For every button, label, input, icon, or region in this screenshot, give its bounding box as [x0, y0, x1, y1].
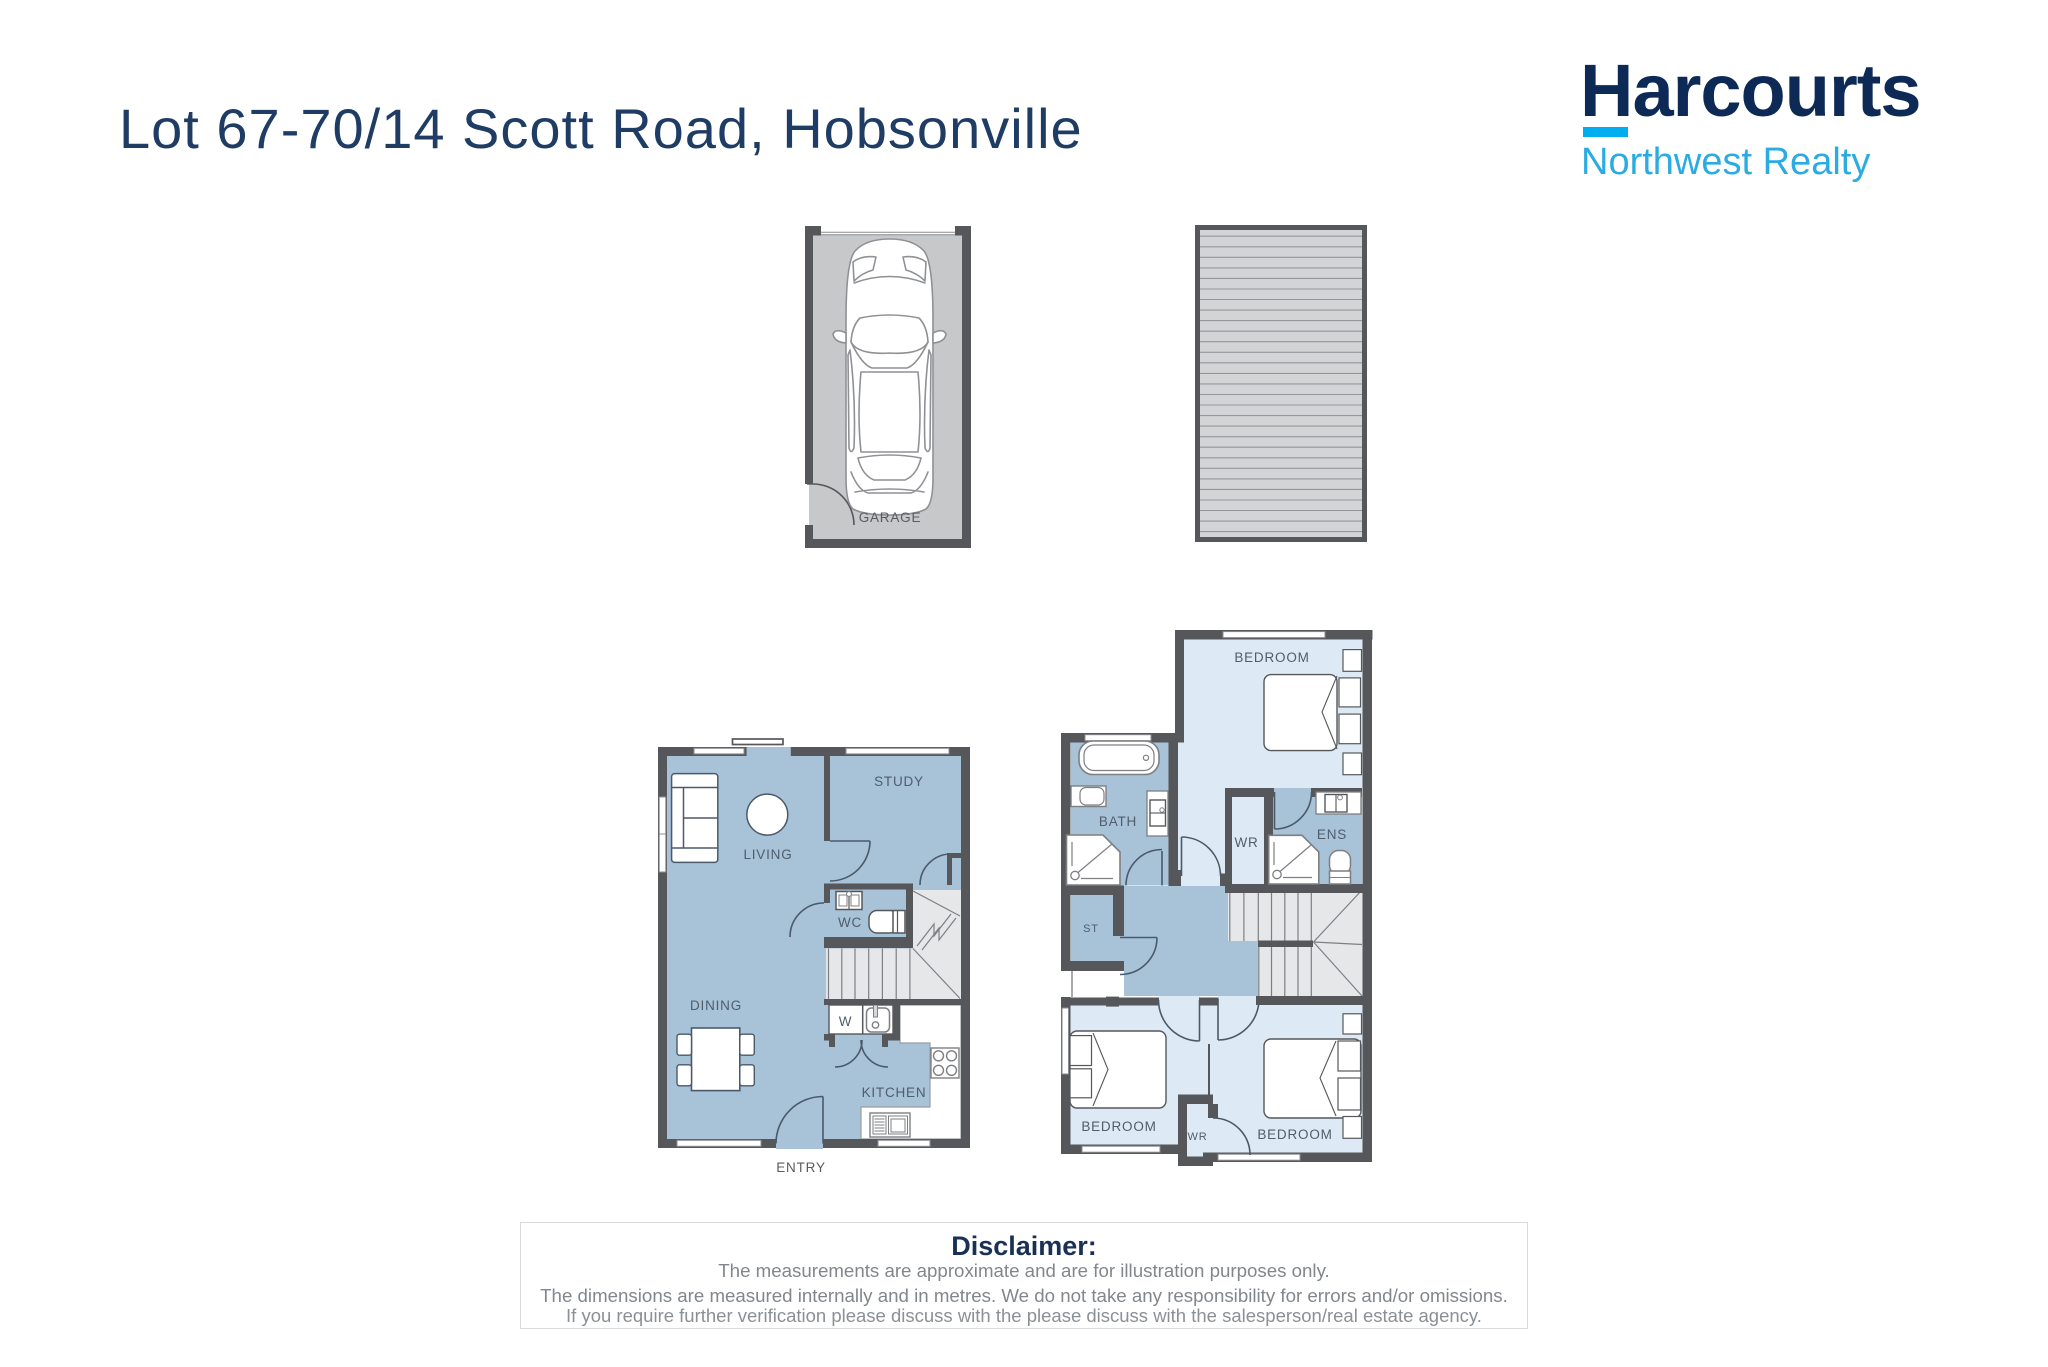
svg-text:ENTRY: ENTRY [776, 1160, 826, 1175]
svg-text:Lot 67-70/14 Scott Road, Hobso: Lot 67-70/14 Scott Road, Hobsonville [119, 97, 1083, 160]
svg-text:LIVING: LIVING [743, 847, 792, 862]
svg-text:WR: WR [1234, 835, 1258, 850]
svg-text:BEDROOM: BEDROOM [1234, 650, 1309, 665]
svg-text:BATH: BATH [1099, 814, 1137, 829]
svg-text:BEDROOM: BEDROOM [1257, 1127, 1332, 1142]
svg-text:ENS: ENS [1317, 827, 1347, 842]
svg-text:GARAGE: GARAGE [859, 510, 922, 525]
svg-text:Harcourts: Harcourts [1580, 49, 1921, 132]
svg-text:Disclaimer:: Disclaimer: [951, 1231, 1097, 1261]
svg-text:ST: ST [1083, 923, 1099, 935]
svg-text:KITCHEN: KITCHEN [862, 1085, 927, 1100]
svg-text:If you require further verific: If you require further verification plea… [566, 1305, 1482, 1326]
svg-text:DINING: DINING [690, 998, 742, 1013]
svg-text:The measurements are approxima: The measurements are approximate and are… [718, 1260, 1329, 1281]
svg-text:BEDROOM: BEDROOM [1081, 1119, 1156, 1134]
svg-text:STUDY: STUDY [874, 774, 924, 789]
svg-text:W: W [839, 1014, 853, 1029]
svg-text:The dimensions are measured in: The dimensions are measured internally a… [540, 1285, 1508, 1306]
svg-text:WR: WR [1188, 1131, 1208, 1143]
svg-text:WC: WC [838, 915, 862, 930]
svg-text:Northwest Realty: Northwest Realty [1581, 141, 1870, 183]
